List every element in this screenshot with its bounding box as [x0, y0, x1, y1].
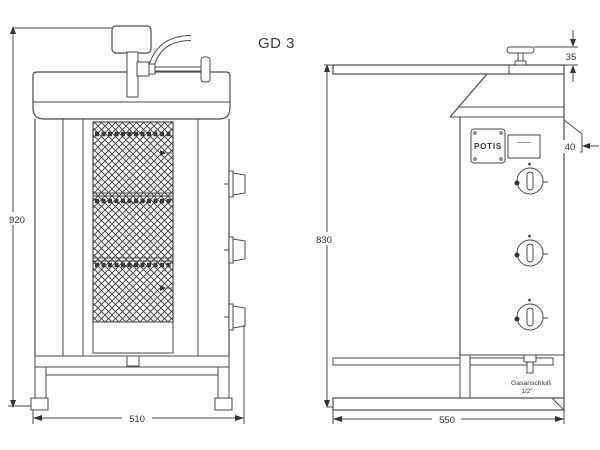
- drawing-title: GD 3: [258, 35, 295, 52]
- front-view: 920: [5, 26, 245, 425]
- doner-grill-drawing: 920: [0, 0, 600, 450]
- control-knob-profile-2: [224, 237, 245, 263]
- control-knob-profile-3: [224, 304, 245, 330]
- side-height-dimension-label: 830: [316, 235, 332, 246]
- technical-drawing-canvas: 920: [0, 0, 600, 450]
- brand-label: POTIS: [474, 142, 502, 151]
- base-frame: [31, 356, 232, 410]
- base-plate: [333, 398, 564, 410]
- dim-40: 40: [560, 140, 599, 153]
- control-knob-3: [515, 299, 549, 330]
- front-height-dimension-label: 920: [9, 215, 25, 226]
- spit-handwheel: [201, 57, 210, 82]
- support-rail: [333, 355, 553, 398]
- control-knob-profile-1: [224, 171, 245, 197]
- spit-rod: [137, 57, 210, 82]
- right-foot: [215, 398, 232, 410]
- support-post: [460, 355, 470, 398]
- drip-tray: [93, 322, 173, 353]
- control-knob-1: [515, 163, 549, 194]
- clamp-handle: [507, 47, 534, 65]
- side-width-dimension-label: 550: [439, 415, 455, 426]
- front-width-dimension-label: 510: [129, 414, 145, 425]
- motor-stem: [127, 52, 138, 97]
- type-plate-text: ———: [517, 140, 531, 145]
- burner-mesh: [93, 122, 173, 322]
- side-body: [460, 74, 564, 398]
- spit-handle: [152, 38, 191, 64]
- top-plate: [333, 65, 564, 74]
- dim-830: 830: [310, 64, 337, 408]
- hood-side: [450, 74, 564, 117]
- bracket-depth-dimension-label: 40: [565, 142, 576, 153]
- base-center-tab: [127, 356, 139, 366]
- type-plate: ———: [508, 135, 540, 158]
- spit-coupler: [137, 62, 149, 76]
- dim-550: 550: [333, 410, 564, 426]
- side-view: 830 35: [310, 30, 599, 426]
- gas-label-text: Gasanschluß: [511, 380, 551, 387]
- brand-plate: POTIS: [471, 129, 505, 163]
- handle-offset-dimension-label: 35: [566, 52, 577, 63]
- gas-connection-label: Gasanschluß 1/2": [511, 380, 551, 395]
- gas-size-text: 1/2": [522, 388, 533, 395]
- control-knob-2: [515, 235, 549, 266]
- left-foot: [31, 398, 48, 410]
